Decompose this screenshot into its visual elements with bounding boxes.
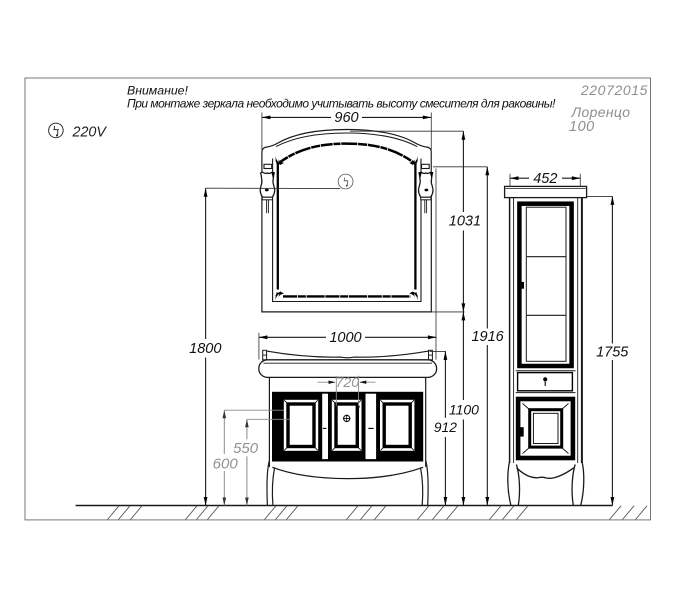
svg-text:960: 960 [334, 110, 358, 126]
svg-text:1916: 1916 [471, 329, 504, 345]
svg-text:1031: 1031 [449, 214, 481, 230]
svg-text:Лоренцо: Лоренцо [571, 104, 631, 120]
svg-text:452: 452 [533, 171, 557, 187]
svg-text:720: 720 [335, 375, 359, 391]
svg-text:550: 550 [233, 440, 259, 457]
svg-text:100: 100 [569, 119, 595, 135]
svg-text:Внимание!: Внимание! [127, 84, 189, 98]
svg-text:600: 600 [213, 456, 239, 473]
svg-text:1755: 1755 [596, 344, 629, 360]
svg-text:При монтаже зеркала необходимо: При монтаже зеркала необходимо учитывать… [127, 97, 556, 111]
svg-text:912: 912 [434, 420, 457, 435]
svg-text:220V: 220V [72, 125, 108, 141]
svg-text:1000: 1000 [329, 330, 361, 346]
svg-text:22072015: 22072015 [580, 82, 648, 98]
svg-text:1800: 1800 [189, 341, 221, 357]
svg-text:1100: 1100 [449, 401, 479, 417]
